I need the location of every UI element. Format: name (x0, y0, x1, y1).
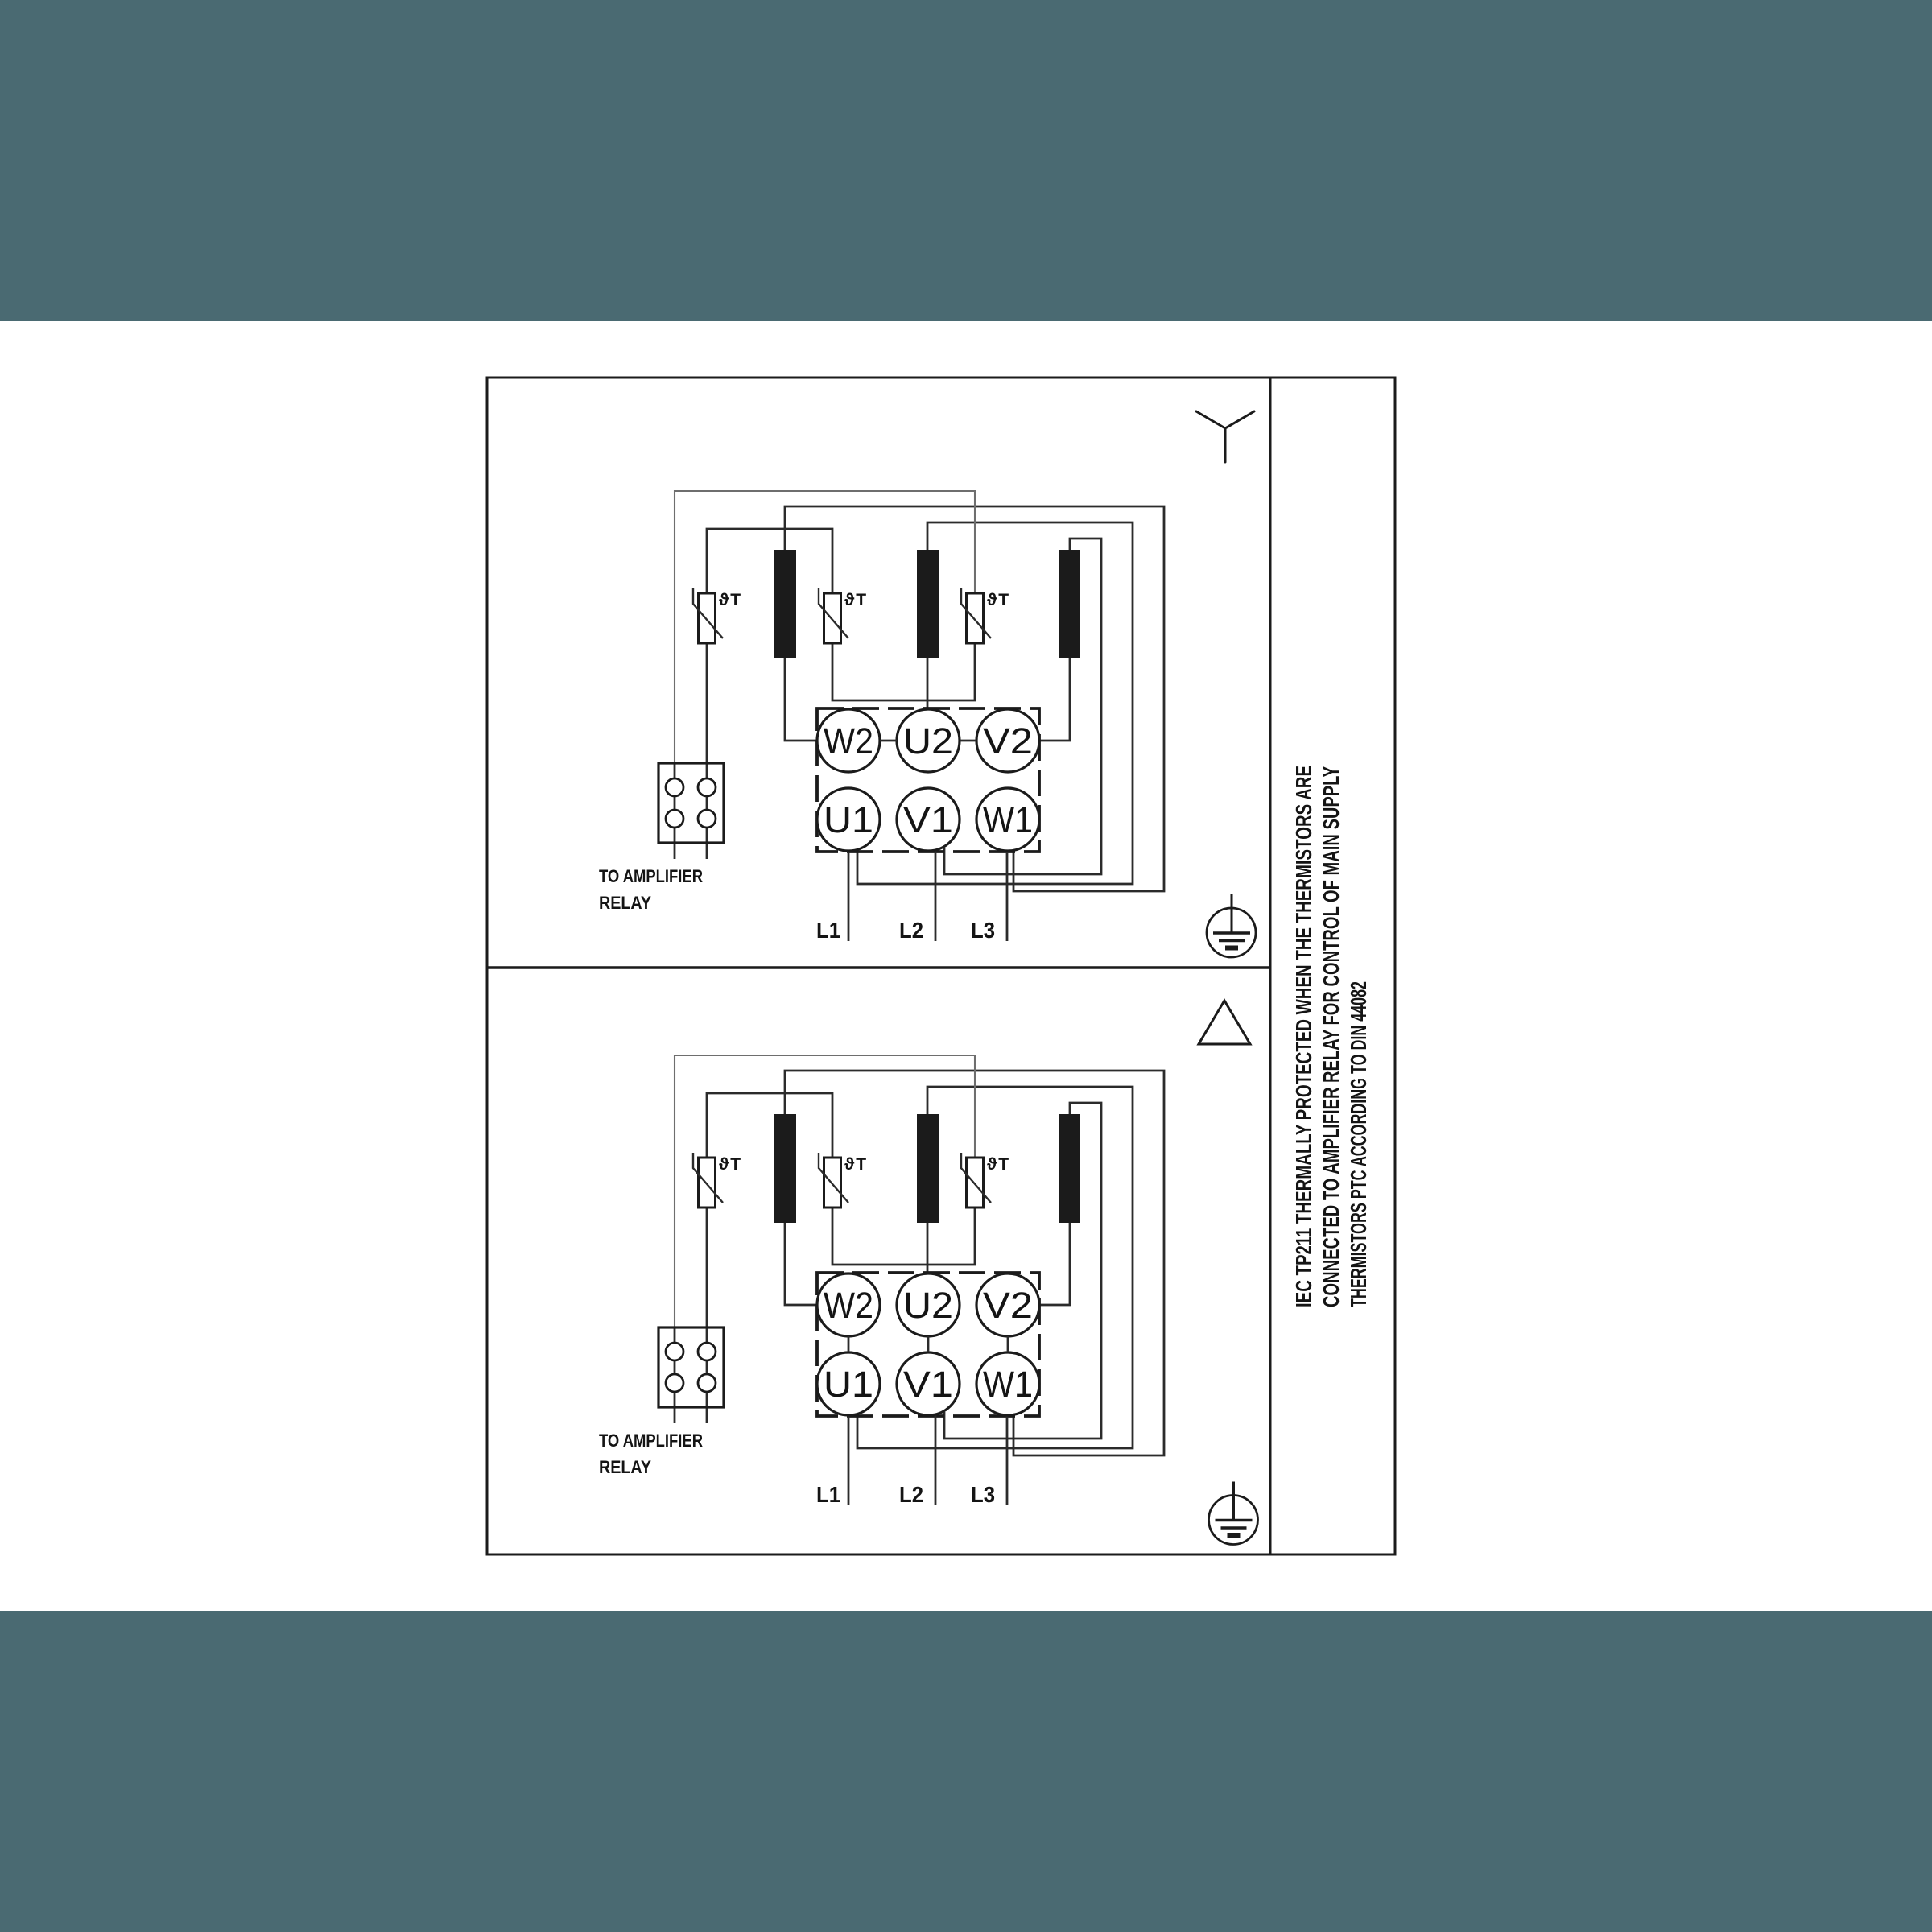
svg-text:CONNECTED TO AMPLIFIER RELAY F: CONNECTED TO AMPLIFIER RELAY FOR CONTROL… (1319, 766, 1344, 1307)
svg-text:IEC TP211 THERMALLY PROTECTED: IEC TP211 THERMALLY PROTECTED WHEN THE T… (1291, 766, 1316, 1307)
svg-text:THERMISTORS PTC ACCORDING TO D: THERMISTORS PTC ACCORDING TO DIN 44082 (1346, 981, 1371, 1307)
